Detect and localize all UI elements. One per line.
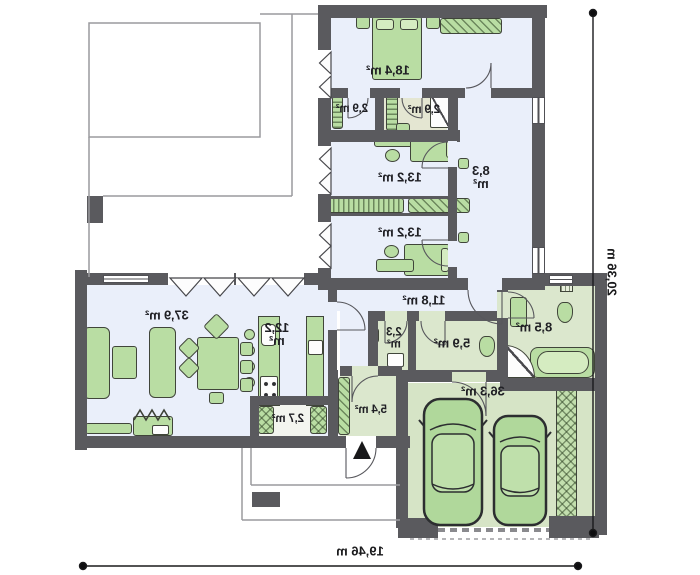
wall: [532, 5, 545, 288]
pillow: [376, 19, 394, 30]
garage-side-storage: [556, 388, 577, 526]
wall: [375, 88, 384, 140]
wall: [328, 370, 338, 440]
wardrobe: [408, 198, 470, 213]
pillow: [400, 19, 418, 30]
overall-height-dimension: 20,36 m: [605, 248, 620, 296]
window: [103, 275, 149, 283]
wall: [408, 311, 416, 372]
room-kitchen-area-label: 12,2 m²: [265, 321, 290, 348]
washing-machine: [387, 353, 404, 367]
wall: [318, 130, 460, 142]
door-opening: [352, 366, 378, 376]
window-opening: [318, 50, 331, 98]
door-opening: [400, 88, 422, 98]
floor-plan-canvas: 18,4 m² 2,9 m² 2,9 m² 13,2 m² 8,3 m² 13,…: [0, 0, 700, 575]
door-opening: [385, 311, 407, 321]
room-bedroom-lower-area-label: 13,2 m²: [378, 225, 421, 238]
wall: [595, 273, 607, 535]
window-opening: [236, 273, 304, 285]
overall-width-dimension: 19,46 m: [336, 544, 384, 559]
toilet: [557, 302, 573, 323]
door-opening: [448, 141, 457, 167]
room-bathroom-ensuite-area-label: 2,9 m²: [408, 105, 440, 117]
room-pantry-area-label: 2,7 m²: [272, 414, 304, 426]
bar-stool: [244, 329, 255, 340]
door-opening: [465, 88, 491, 98]
dining-chair: [240, 360, 253, 374]
oven: [308, 340, 323, 355]
front-door-opening: [346, 436, 376, 448]
dining-chair: [240, 342, 253, 356]
wall: [75, 270, 87, 450]
wall: [318, 5, 547, 18]
room-bathroom-guest-area-label: 5,9 m²: [434, 336, 470, 349]
wall: [318, 196, 448, 199]
kitchen-counter: [306, 316, 324, 406]
wardrobe: [440, 18, 502, 34]
room-bathroom-main-area-label: 8,5 m²: [516, 320, 552, 333]
door-opening: [452, 372, 486, 382]
room-entry-hall-area-label: 5,4 m²: [355, 405, 387, 417]
dining-chair: [209, 392, 224, 404]
wall: [396, 372, 408, 528]
room-wc-area-label: 2,3 m²: [386, 327, 401, 350]
wall: [549, 516, 599, 538]
window-opening: [168, 273, 234, 285]
wall: [250, 396, 259, 448]
wall: [500, 378, 607, 391]
wall: [255, 396, 332, 405]
room-hallway-area-label: 11,8 m²: [403, 293, 446, 306]
door-opening: [468, 278, 502, 290]
desk: [376, 259, 414, 272]
wall: [318, 278, 545, 290]
terrace-pillar: [87, 196, 103, 223]
room-hallway-corridor-floor: [340, 311, 368, 366]
window: [549, 275, 573, 284]
window: [532, 247, 545, 274]
entrance-step: [252, 492, 280, 507]
room-bedroom-upper-area-label: 13,2 m²: [378, 170, 421, 183]
wall: [75, 436, 332, 448]
wardrobe: [322, 198, 404, 213]
door-opening: [419, 311, 445, 321]
window: [532, 97, 545, 124]
room-master-bedroom-area-label: 18,4 m²: [366, 63, 409, 76]
bathtub-inner: [537, 351, 589, 374]
door-opening: [328, 302, 337, 330]
wall: [318, 213, 448, 216]
nightstand: [458, 232, 469, 243]
room-corridor-area-label: 8,3 m²: [472, 164, 489, 191]
door-opening: [497, 292, 508, 318]
coffee-table: [112, 346, 137, 379]
sofa: [149, 327, 176, 398]
desk-chair: [384, 245, 399, 258]
toilet: [479, 336, 495, 357]
nightstand: [458, 158, 469, 169]
wall: [368, 311, 378, 372]
dining-table: [197, 337, 239, 390]
cabinet: [310, 406, 327, 434]
window-opening: [318, 146, 331, 194]
door-opening: [448, 241, 457, 267]
room-garage-area-label: 36,3 m²: [461, 384, 504, 397]
coat-closet: [338, 377, 350, 435]
room-living-room-area-label: 37,9 m²: [145, 308, 188, 321]
window-opening: [318, 222, 331, 268]
desk-chair: [385, 149, 400, 162]
dining-chair: [240, 378, 253, 392]
tv-bench: [85, 423, 132, 434]
room-wardrobe-left-area-label: 2,9 m²: [336, 104, 368, 116]
door-opening: [348, 88, 370, 98]
fireplace-insert: [152, 425, 169, 435]
sofa: [83, 327, 110, 399]
